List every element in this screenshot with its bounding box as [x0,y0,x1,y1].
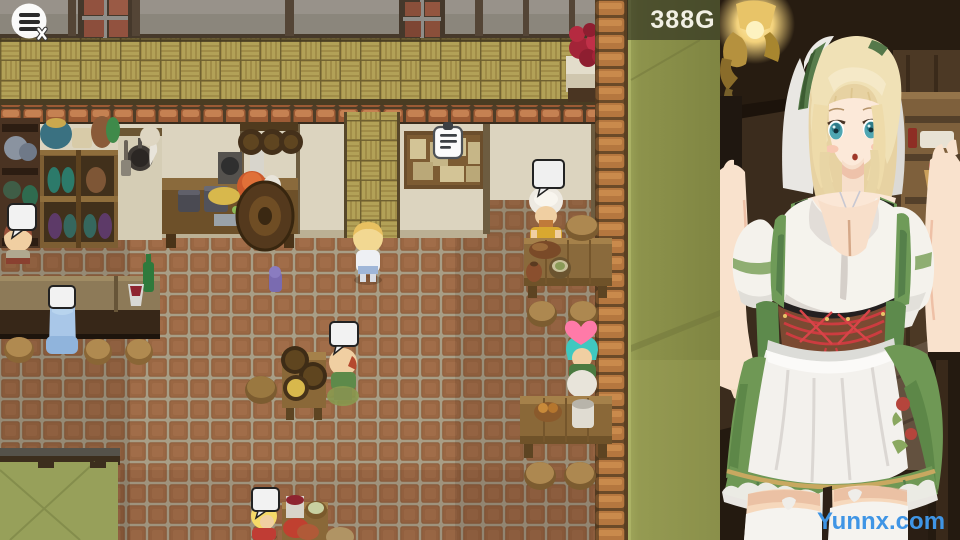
svg-text:388G: 388G [650,6,715,34]
svg-text:Yunnx.com: Yunnx.com [817,508,945,535]
